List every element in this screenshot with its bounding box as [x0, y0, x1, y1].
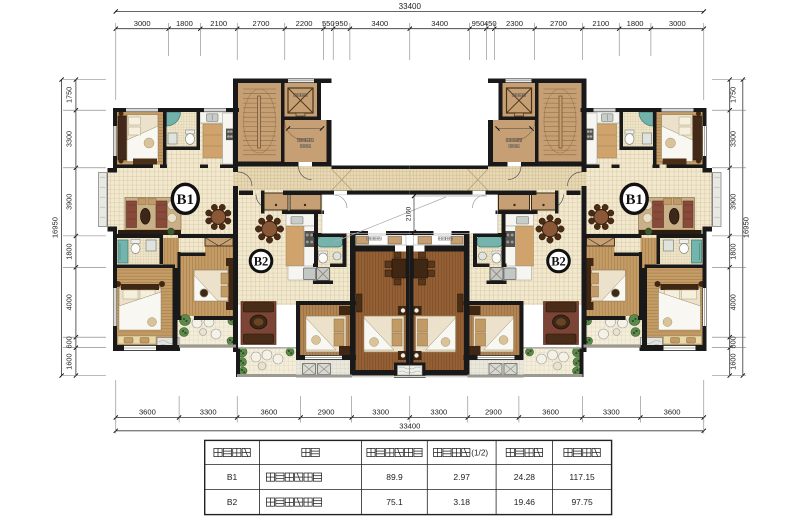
svg-text:550: 550: [322, 19, 335, 28]
svg-text:2900: 2900: [318, 408, 335, 417]
svg-text:2900: 2900: [485, 408, 502, 417]
svg-text:1800: 1800: [176, 19, 193, 28]
svg-text:75.1: 75.1: [386, 497, 403, 507]
svg-text:4000: 4000: [65, 294, 74, 310]
svg-text:3300: 3300: [200, 408, 217, 417]
svg-text:2100: 2100: [592, 19, 609, 28]
svg-text:B1: B1: [625, 192, 643, 208]
svg-text:1600: 1600: [729, 353, 738, 369]
svg-text:1750: 1750: [65, 87, 74, 103]
svg-text:3900: 3900: [729, 194, 738, 210]
svg-text:3300: 3300: [603, 408, 620, 417]
svg-text:2700: 2700: [253, 19, 270, 28]
svg-text:24.28: 24.28: [514, 472, 536, 482]
svg-text:3.18: 3.18: [453, 497, 470, 507]
svg-text:950: 950: [472, 19, 485, 28]
svg-text:B1: B1: [227, 472, 238, 482]
svg-text:117.15: 117.15: [569, 472, 595, 482]
svg-text:3600: 3600: [139, 408, 156, 417]
svg-text:1800: 1800: [627, 19, 644, 28]
svg-text:3900: 3900: [65, 194, 74, 210]
svg-text:B1: B1: [177, 192, 195, 208]
svg-text:2.97: 2.97: [453, 472, 470, 482]
svg-text:(1/2): (1/2): [471, 449, 488, 458]
svg-text:2100: 2100: [406, 206, 413, 221]
svg-text:1750: 1750: [729, 87, 738, 103]
svg-text:3300: 3300: [430, 408, 447, 417]
svg-text:89.9: 89.9: [386, 472, 403, 482]
svg-text:3300: 3300: [65, 131, 74, 147]
svg-text:2700: 2700: [550, 19, 567, 28]
svg-text:3000: 3000: [669, 19, 686, 28]
svg-text:3600: 3600: [664, 408, 681, 417]
svg-text:2300: 2300: [506, 19, 523, 28]
svg-text:19.46: 19.46: [514, 497, 536, 507]
svg-text:1800: 1800: [65, 243, 74, 259]
svg-text:16950: 16950: [742, 217, 751, 238]
svg-text:3300: 3300: [372, 408, 389, 417]
svg-text:97.75: 97.75: [571, 497, 593, 507]
svg-text:3300: 3300: [729, 131, 738, 147]
svg-text:3600: 3600: [542, 408, 559, 417]
svg-text:3000: 3000: [134, 19, 151, 28]
svg-text:2100: 2100: [210, 19, 227, 28]
svg-text:4000: 4000: [729, 294, 738, 310]
svg-text:2200: 2200: [296, 19, 313, 28]
svg-text:3400: 3400: [431, 19, 448, 28]
svg-text:33400: 33400: [399, 2, 422, 11]
svg-text:B2: B2: [254, 254, 269, 268]
svg-text:3600: 3600: [260, 408, 277, 417]
svg-text:16950: 16950: [51, 217, 60, 238]
svg-text:B2: B2: [551, 254, 566, 268]
svg-text:600: 600: [729, 336, 738, 348]
svg-text:950: 950: [335, 19, 348, 28]
svg-text:1800: 1800: [729, 243, 738, 259]
svg-text:33400: 33400: [399, 421, 420, 430]
svg-text:600: 600: [65, 336, 74, 348]
svg-text:B2: B2: [227, 497, 238, 507]
svg-text:450: 450: [484, 19, 497, 28]
svg-text:1600: 1600: [65, 353, 74, 369]
svg-text:3400: 3400: [371, 19, 388, 28]
